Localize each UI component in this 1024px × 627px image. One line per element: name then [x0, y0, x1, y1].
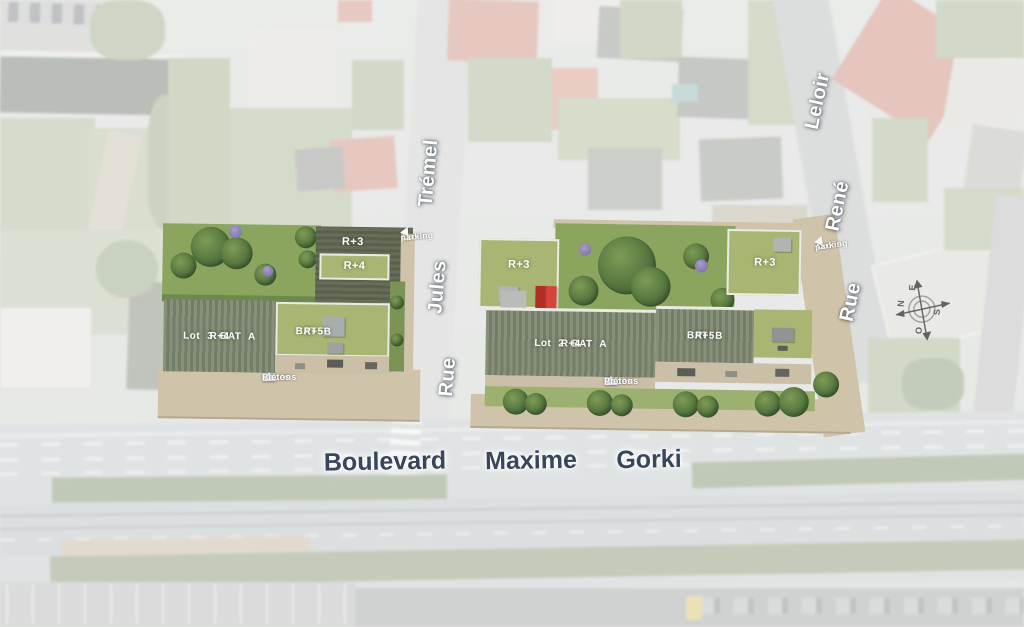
lot2-roof-terrace-lawn-part [772, 328, 794, 342]
compass-icon-part-part [941, 300, 951, 308]
lot2-terrace-part [775, 369, 789, 377]
lot2-terrace [655, 362, 811, 384]
compass-south: S [932, 309, 942, 316]
lot3-r3-label: R+3 [323, 235, 383, 248]
lot2-bat-b-roof-part: R+5 [695, 330, 715, 341]
tree [390, 295, 404, 309]
tree [390, 333, 403, 346]
compass-icon-part-part [922, 331, 932, 341]
compass-icon: N E S O [890, 273, 957, 347]
lot3-terrace-part [365, 362, 377, 369]
lot3-bat-a-roof: Lot 3 BAT A R+4 [163, 299, 276, 373]
lot2-bat-a-roof-part: R+4 [561, 338, 581, 349]
compass-east: E [907, 284, 917, 291]
lot3-bat-b-label: BAT B R+5 [281, 316, 345, 347]
street-label-rue-jules-tremel: Jules [424, 259, 452, 314]
lot2-parcel: R+3 R+3 Lot 2 BAT A R+4 BAT B R+5 [470, 216, 865, 434]
compass-north: N [896, 300, 906, 307]
access-pedestrian-right-part-part: Piétons [604, 376, 639, 387]
lot2-roof-terrace-lawn [754, 309, 813, 358]
lot2-r3-left-label: R+3 [489, 258, 549, 271]
lot3-terrace-part [327, 360, 343, 368]
lot3-bat-a-roof-part: R+4 [209, 330, 229, 341]
access-pedestrian-left-part-part: Piétons [262, 372, 297, 383]
lot2-terrace-part [677, 368, 695, 376]
site-plan-map: R+3 R+4 BAT B R+5 Lot 3 BAT A R+4 [0, 0, 1024, 627]
flowering-bush [262, 266, 273, 277]
flowering-bush [229, 225, 242, 238]
site-plan-map-part: R+3 R+4 BAT B R+5 Lot 3 BAT A R+4 [0, 0, 1024, 627]
street-label-rue-jules-tremel: Rue [435, 356, 461, 397]
lot3-r4-label: R+4 [324, 260, 384, 273]
access-parking-left-part-part: parking [400, 230, 434, 243]
street-label-rue-jules-tremel: Trémel [415, 138, 444, 207]
compass-west: O [914, 327, 924, 335]
lot2-bat-a-roof: Lot 2 BAT A R+4 [485, 307, 656, 378]
street-label-boulevard-maxime-gorki: Maxime [485, 446, 577, 477]
lot2-r3-right-label: R+3 [735, 256, 795, 269]
lot3-parcel-part [404, 266, 415, 376]
lot2-bat-b-roof: BAT B R+5 [655, 306, 754, 364]
lot2-roof-r3-right-part [773, 238, 791, 252]
street-label-boulevard-maxime-gorki: Gorki [616, 445, 682, 475]
lot3-terrace-part [295, 363, 305, 369]
existing-red-roof-house [535, 286, 556, 309]
street-label-boulevard-maxime-gorki: Boulevard [324, 446, 447, 477]
lot3-bat-b-label-part: R+5 [304, 326, 324, 337]
lot2-roof-terrace-lawn-part [778, 346, 788, 351]
compass-icon-part-part [895, 310, 905, 318]
street-label-rue-rene-leloir: Leloir [801, 71, 835, 132]
lot2-terrace-part [725, 371, 737, 377]
lot3-parcel: R+3 R+4 BAT B R+5 Lot 3 BAT A R+4 [161, 222, 415, 376]
